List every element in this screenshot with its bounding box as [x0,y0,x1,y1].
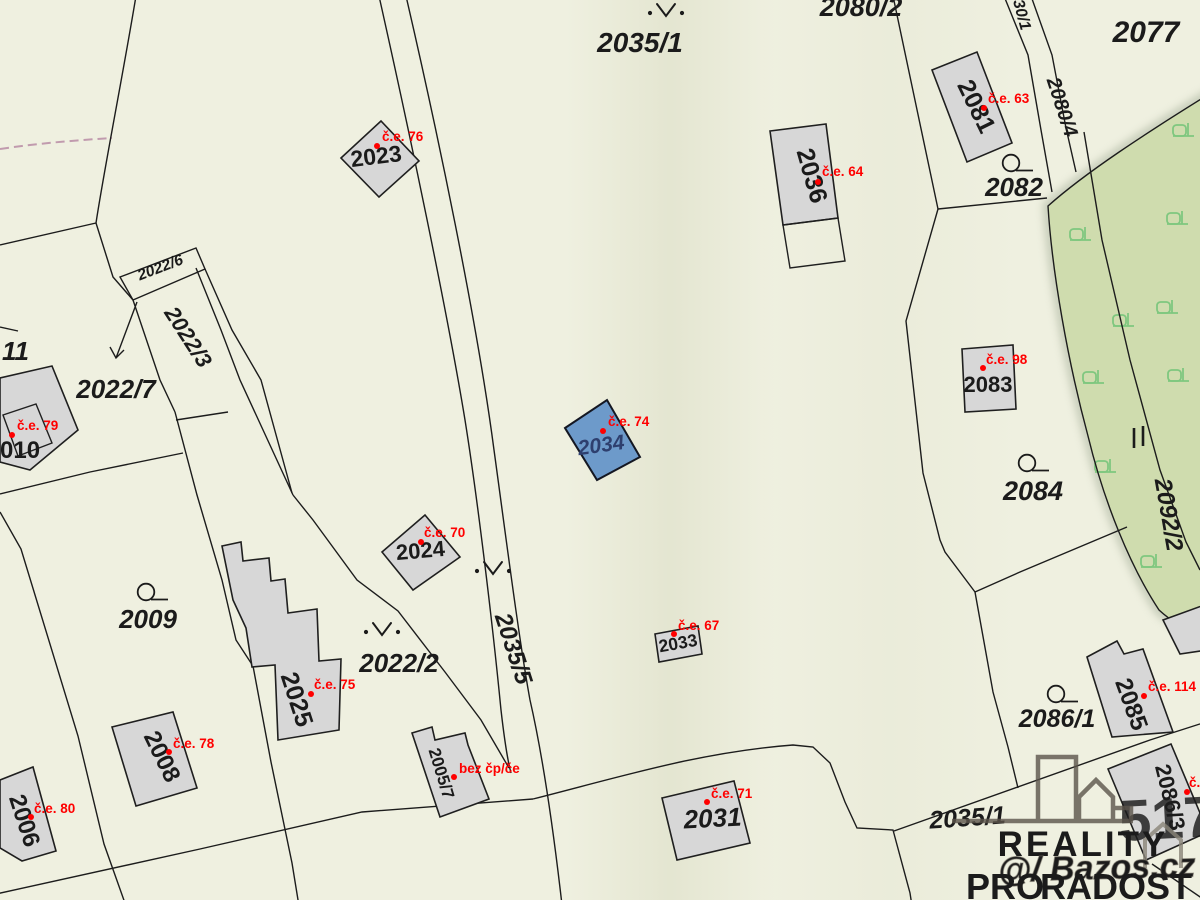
watermark-brand-radost: RADOST [1040,866,1192,900]
parcel-label-2035-1: 2035/1 [596,27,683,58]
evidence-label-71: č.e. 71 [711,786,753,801]
watermark-brand-pro: PRO [966,866,1044,900]
building-label-2031: 2031 [682,802,742,835]
evidence-label-114: č.e. 114 [1148,679,1197,694]
parcel-label-2022-7: 2022/7 [75,374,157,404]
map-canvas: 2035/1 2080/2 2077 30/1 2080/4 2081 2082… [0,0,1200,900]
parcel-label-2077: 2077 [1112,16,1181,49]
evidence-label-79: č.e. 79 [17,418,58,433]
parcel-label-2022-2: 2022/2 [358,648,439,678]
parcel-label-2035-1-south: 2035/1 [927,801,1006,834]
evidence-label-80: č.e. 80 [34,801,75,816]
evidence-label-75: č.e. 75 [314,677,356,692]
evidence-label-63: č.e. 63 [988,91,1030,106]
building-label-2083: 2083 [964,372,1013,397]
evidence-label-76: č.e. 76 [382,129,424,144]
parcel-label-2080-2: 2080/2 [819,0,903,22]
evidence-label-67: č.e. 67 [678,618,719,633]
parcel-label-2084: 2084 [1002,476,1063,506]
evidence-label-78: č.e. 78 [173,736,215,751]
parcel-label-2086-1: 2086/1 [1018,705,1095,733]
evidence-label-64: č.e. 64 [822,164,864,179]
building-label-2010-partial: 010 [0,437,40,464]
parcel-label-2009: 2009 [118,604,177,634]
evidence-label-bez-cp-ce: bez čp/če [459,761,520,776]
evidence-label-74: č.e. 74 [608,414,650,429]
parcel-label-2082: 2082 [984,172,1043,202]
evidence-label-98: č.e. 98 [986,352,1028,367]
cadastral-map: 2035/1 2080/2 2077 30/1 2080/4 2081 2082… [0,0,1200,900]
evidence-label-70: č.e. 70 [424,525,465,540]
parcel-label-2011-partial: 11 [2,336,29,366]
